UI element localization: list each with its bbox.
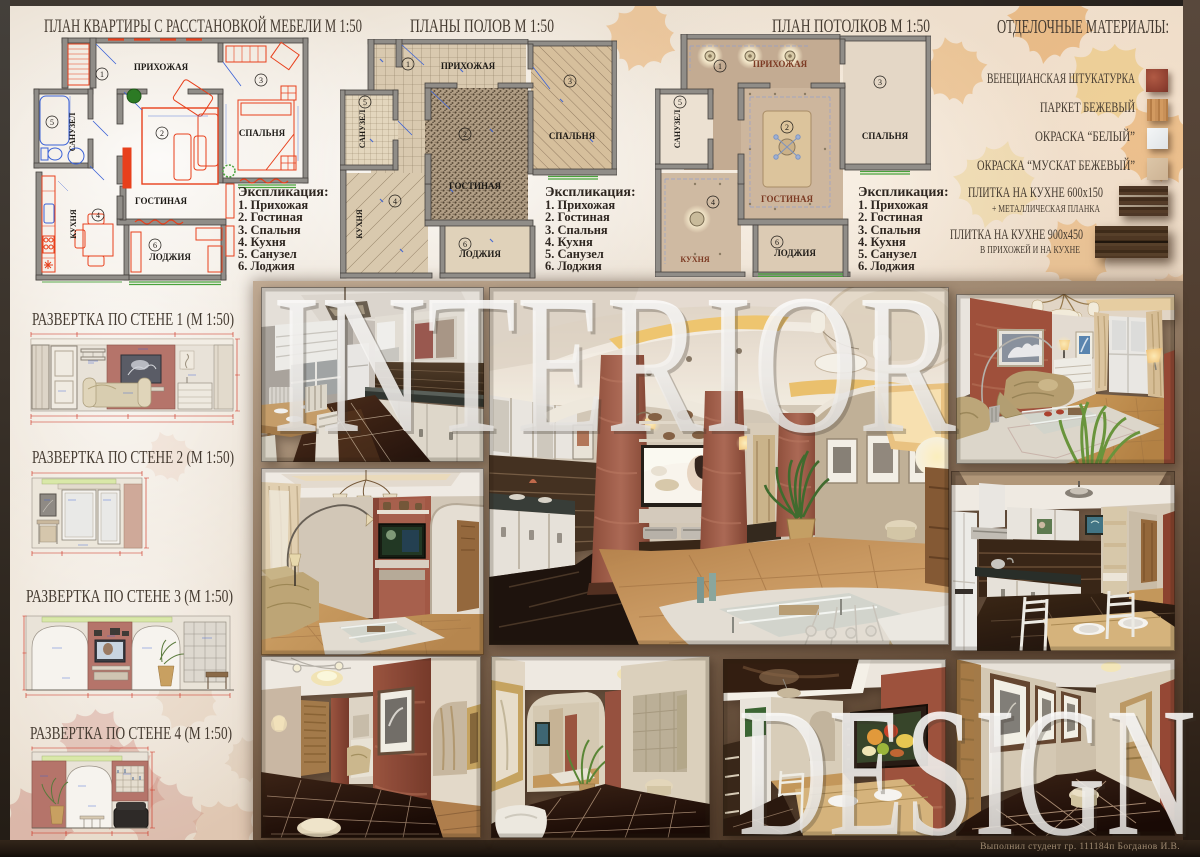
svg-text:4: 4: [711, 198, 715, 207]
svg-text:ГОСТИНАЯ: ГОСТИНАЯ: [135, 196, 188, 206]
svg-text:СПАЛЬНЯ: СПАЛЬНЯ: [239, 128, 286, 138]
svg-text:ЛОДЖИЯ: ЛОДЖИЯ: [774, 248, 816, 258]
svg-text:1: 1: [406, 60, 410, 69]
svg-text:САНУЗЕЛ: САНУЗЕЛ: [673, 110, 682, 149]
svg-text:ПАРКЕТ БЕЖЕВЫЙ: ПАРКЕТ БЕЖЕВЫЙ: [1040, 99, 1135, 116]
svg-text:РАЗВЕРТКА ПО СТЕНЕ 4 (М 1:50): РАЗВЕРТКА ПО СТЕНЕ 4 (М 1:50): [30, 723, 232, 744]
svg-text:ГОСТИНАЯ: ГОСТИНАЯ: [449, 181, 502, 191]
svg-text:РАЗВЕРТКА ПО СТЕНЕ 2 (М 1:50): РАЗВЕРТКА ПО СТЕНЕ 2 (М 1:50): [32, 447, 234, 468]
svg-text:6: 6: [463, 240, 467, 249]
svg-text:РАЗВЕРТКА ПО СТЕНЕ 3 (М 1:50): РАЗВЕРТКА ПО СТЕНЕ 3 (М 1:50): [26, 586, 233, 607]
svg-text:ОКРАСКА “МУСКАТ БЕЖЕВЫЙ”: ОКРАСКА “МУСКАТ БЕЖЕВЫЙ”: [977, 157, 1135, 174]
svg-text:РАЗВЕРТКА ПО СТЕНЕ 1 (М 1:50): РАЗВЕРТКА ПО СТЕНЕ 1 (М 1:50): [32, 309, 234, 330]
svg-text:5: 5: [678, 98, 682, 107]
svg-text:ГОСТИНАЯ: ГОСТИНАЯ: [761, 194, 814, 204]
svg-text:5: 5: [363, 98, 367, 107]
svg-text:3: 3: [568, 77, 572, 86]
svg-text:КУХНЯ: КУХНЯ: [355, 209, 364, 239]
svg-text:КУХНЯ: КУХНЯ: [69, 209, 78, 239]
svg-text:САНУЗЕЛ: САНУЗЕЛ: [68, 113, 77, 152]
svg-text:2: 2: [785, 123, 789, 132]
svg-text:ПЛИТКА НА КУХНЕ 900х450: ПЛИТКА НА КУХНЕ 900х450: [950, 227, 1083, 243]
svg-text:В ПРИХОЖЕЙ И НА КУХНЕ: В ПРИХОЖЕЙ И НА КУХНЕ: [980, 244, 1080, 256]
svg-text:4: 4: [96, 211, 100, 220]
svg-text:1: 1: [100, 70, 104, 79]
svg-text:САНУЗЕЛ: САНУЗЕЛ: [358, 110, 367, 149]
svg-text:ПЛИТКА НА КУХНЕ 600х150: ПЛИТКА НА КУХНЕ 600х150: [968, 185, 1103, 201]
svg-text:ОТДЕЛОЧНЫЕ МАТЕРИАЛЫ:: ОТДЕЛОЧНЫЕ МАТЕРИАЛЫ:: [997, 16, 1169, 38]
svg-text:СПАЛЬНЯ: СПАЛЬНЯ: [862, 131, 909, 141]
svg-text:6: 6: [153, 241, 157, 250]
svg-text:1: 1: [718, 62, 722, 71]
svg-text:2: 2: [463, 130, 467, 139]
svg-text:ПРИХОЖАЯ: ПРИХОЖАЯ: [441, 61, 496, 71]
svg-text:5: 5: [50, 118, 54, 127]
svg-text:DESIGN: DESIGN: [738, 691, 1196, 851]
svg-text:ПЛАНЫ ПОЛОВ М 1:50: ПЛАНЫ ПОЛОВ М 1:50: [410, 16, 554, 37]
svg-text:3: 3: [878, 78, 882, 87]
svg-text:ПРИХОЖАЯ: ПРИХОЖАЯ: [753, 59, 808, 69]
svg-text:ПЛАН КВАРТИРЫ С РАССТАНОВКОЙ М: ПЛАН КВАРТИРЫ С РАССТАНОВКОЙ МЕБЕЛИ М 1:…: [44, 16, 362, 37]
svg-text:2: 2: [160, 129, 164, 138]
svg-text:СПАЛЬНЯ: СПАЛЬНЯ: [549, 131, 596, 141]
svg-text:+ МЕТАЛЛИЧЕСКАЯ ПЛАНКА: + МЕТАЛЛИЧЕСКАЯ ПЛАНКА: [992, 203, 1100, 215]
svg-text:ВЕНЕЦИАНСКАЯ ШТУКАТУРКА: ВЕНЕЦИАНСКАЯ ШТУКАТУРКА: [987, 71, 1135, 87]
svg-text:INTERIOR: INTERIOR: [272, 276, 956, 451]
svg-text:4: 4: [393, 197, 397, 206]
svg-text:ЛОДЖИЯ: ЛОДЖИЯ: [459, 249, 501, 259]
svg-text:6: 6: [775, 238, 779, 247]
svg-text:КУХНЯ: КУХНЯ: [680, 255, 710, 264]
svg-text:ПРИХОЖАЯ: ПРИХОЖАЯ: [134, 62, 189, 72]
svg-text:ОКРАСКА “БЕЛЫЙ”: ОКРАСКА “БЕЛЫЙ”: [1035, 128, 1135, 145]
svg-text:3: 3: [259, 76, 263, 85]
svg-text:ЛОДЖИЯ: ЛОДЖИЯ: [149, 252, 191, 262]
